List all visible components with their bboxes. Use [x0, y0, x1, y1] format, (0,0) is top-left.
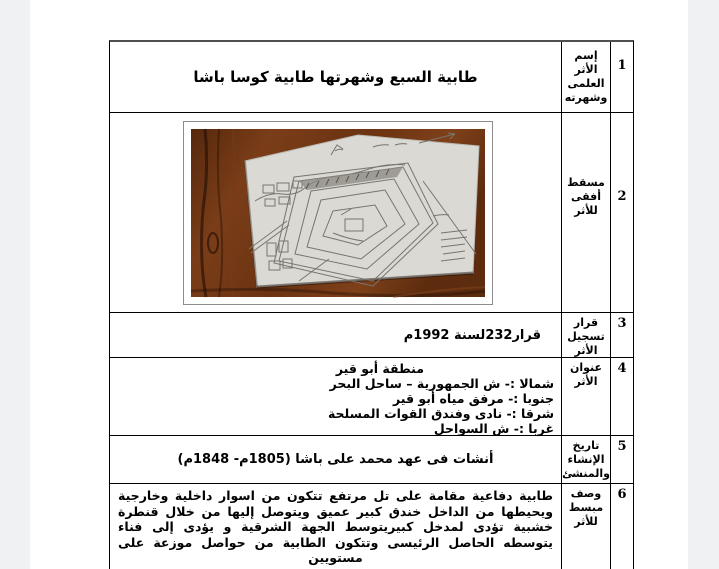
monument-title: طابية السبع وشهرتها طابية كوسا باشا	[193, 68, 477, 86]
monument-description: طابية دفاعية مقامة على تل مرتفع تتكون من…	[118, 488, 553, 566]
row-label-cell: مسقط أفقى للأثر	[561, 113, 611, 312]
row-label: تاريخ الإنشاء والمنشئ	[562, 439, 610, 481]
row-number: 5	[617, 439, 626, 454]
address-cell: منطقة أبو قير شمالا :- ش الجمهورية – ساح…	[110, 358, 561, 435]
construction-date: أنشات فى عهد محمد على باشا (1805م- 1848م…	[178, 452, 494, 467]
row-number-cell: 6	[611, 484, 633, 569]
row-label: عنوان الأثر	[570, 361, 602, 389]
row-label: مسقط أفقى للأثر	[562, 176, 610, 218]
table-row-date: أنشات فى عهد محمد على باشا (1805م- 1848م…	[110, 436, 633, 484]
address-east: شرقا :- نادى وفندق القوات المسلحة	[117, 406, 554, 421]
row-label-cell: قرار تسجيل الأثر	[561, 313, 611, 357]
document-viewer: طابية السبع وشهرتها طابية كوسا باشا إسم …	[0, 0, 719, 569]
row-number: 1	[617, 58, 626, 73]
row-label-cell: عنوان الأثر	[561, 358, 611, 435]
address-district: منطقة أبو قير	[117, 361, 554, 376]
table-row-description: طابية دفاعية مقامة على تل مرتفع تتكون من…	[110, 484, 633, 569]
address-south: جنوبا :- مرفق مياه أبو قير	[117, 391, 554, 406]
row-number-cell: 5	[611, 436, 633, 483]
monument-title-cell: طابية السبع وشهرتها طابية كوسا باشا	[110, 42, 561, 112]
registration-decision: قرار232لسنة 1992م	[404, 328, 541, 343]
site-plan-photo	[183, 121, 493, 305]
address-west: غربا :- ش السواحل	[117, 421, 554, 436]
row-number: 2	[617, 189, 626, 204]
decision-cell: قرار232لسنة 1992م	[110, 313, 561, 357]
table-row-plan: مسقط أفقى للأثر 2	[110, 113, 633, 313]
row-number-cell: 4	[611, 358, 633, 435]
row-label: إسم الأثر العلمى وشهرته	[562, 49, 610, 105]
row-label-cell: إسم الأثر العلمى وشهرته	[561, 42, 611, 112]
row-number: 4	[617, 361, 626, 376]
address-north: شمالا :- ش الجمهورية – ساحل البحر	[117, 376, 554, 391]
site-plan-photo-image	[183, 121, 493, 305]
row-number: 3	[617, 316, 626, 331]
row-number-cell: 1	[611, 42, 633, 112]
row-label-cell: وصف مبسط للأثر	[561, 484, 611, 569]
row-number: 6	[617, 487, 626, 502]
table-row-address: منطقة أبو قير شمالا :- ش الجمهورية – ساح…	[110, 358, 633, 436]
table-row-name: طابية السبع وشهرتها طابية كوسا باشا إسم …	[110, 42, 633, 113]
row-label: وصف مبسط للأثر	[569, 487, 603, 529]
row-label-cell: تاريخ الإنشاء والمنشئ	[561, 436, 611, 483]
doc-page: طابية السبع وشهرتها طابية كوسا باشا إسم …	[30, 0, 688, 569]
table-row-decision: قرار232لسنة 1992م قرار تسجيل الأثر 3	[110, 313, 633, 358]
row-number-cell: 2	[611, 113, 633, 312]
plan-photo-cell	[110, 113, 561, 312]
monument-record-table: طابية السبع وشهرتها طابية كوسا باشا إسم …	[109, 40, 634, 569]
row-number-cell: 3	[611, 313, 633, 357]
date-cell: أنشات فى عهد محمد على باشا (1805م- 1848م…	[110, 436, 561, 483]
row-label: قرار تسجيل الأثر	[567, 316, 605, 358]
description-cell: طابية دفاعية مقامة على تل مرتفع تتكون من…	[110, 484, 561, 569]
